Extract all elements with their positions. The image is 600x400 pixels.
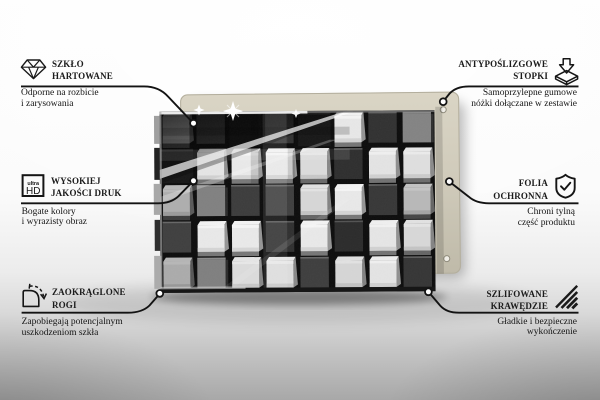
svg-text:HD: HD xyxy=(26,186,40,197)
